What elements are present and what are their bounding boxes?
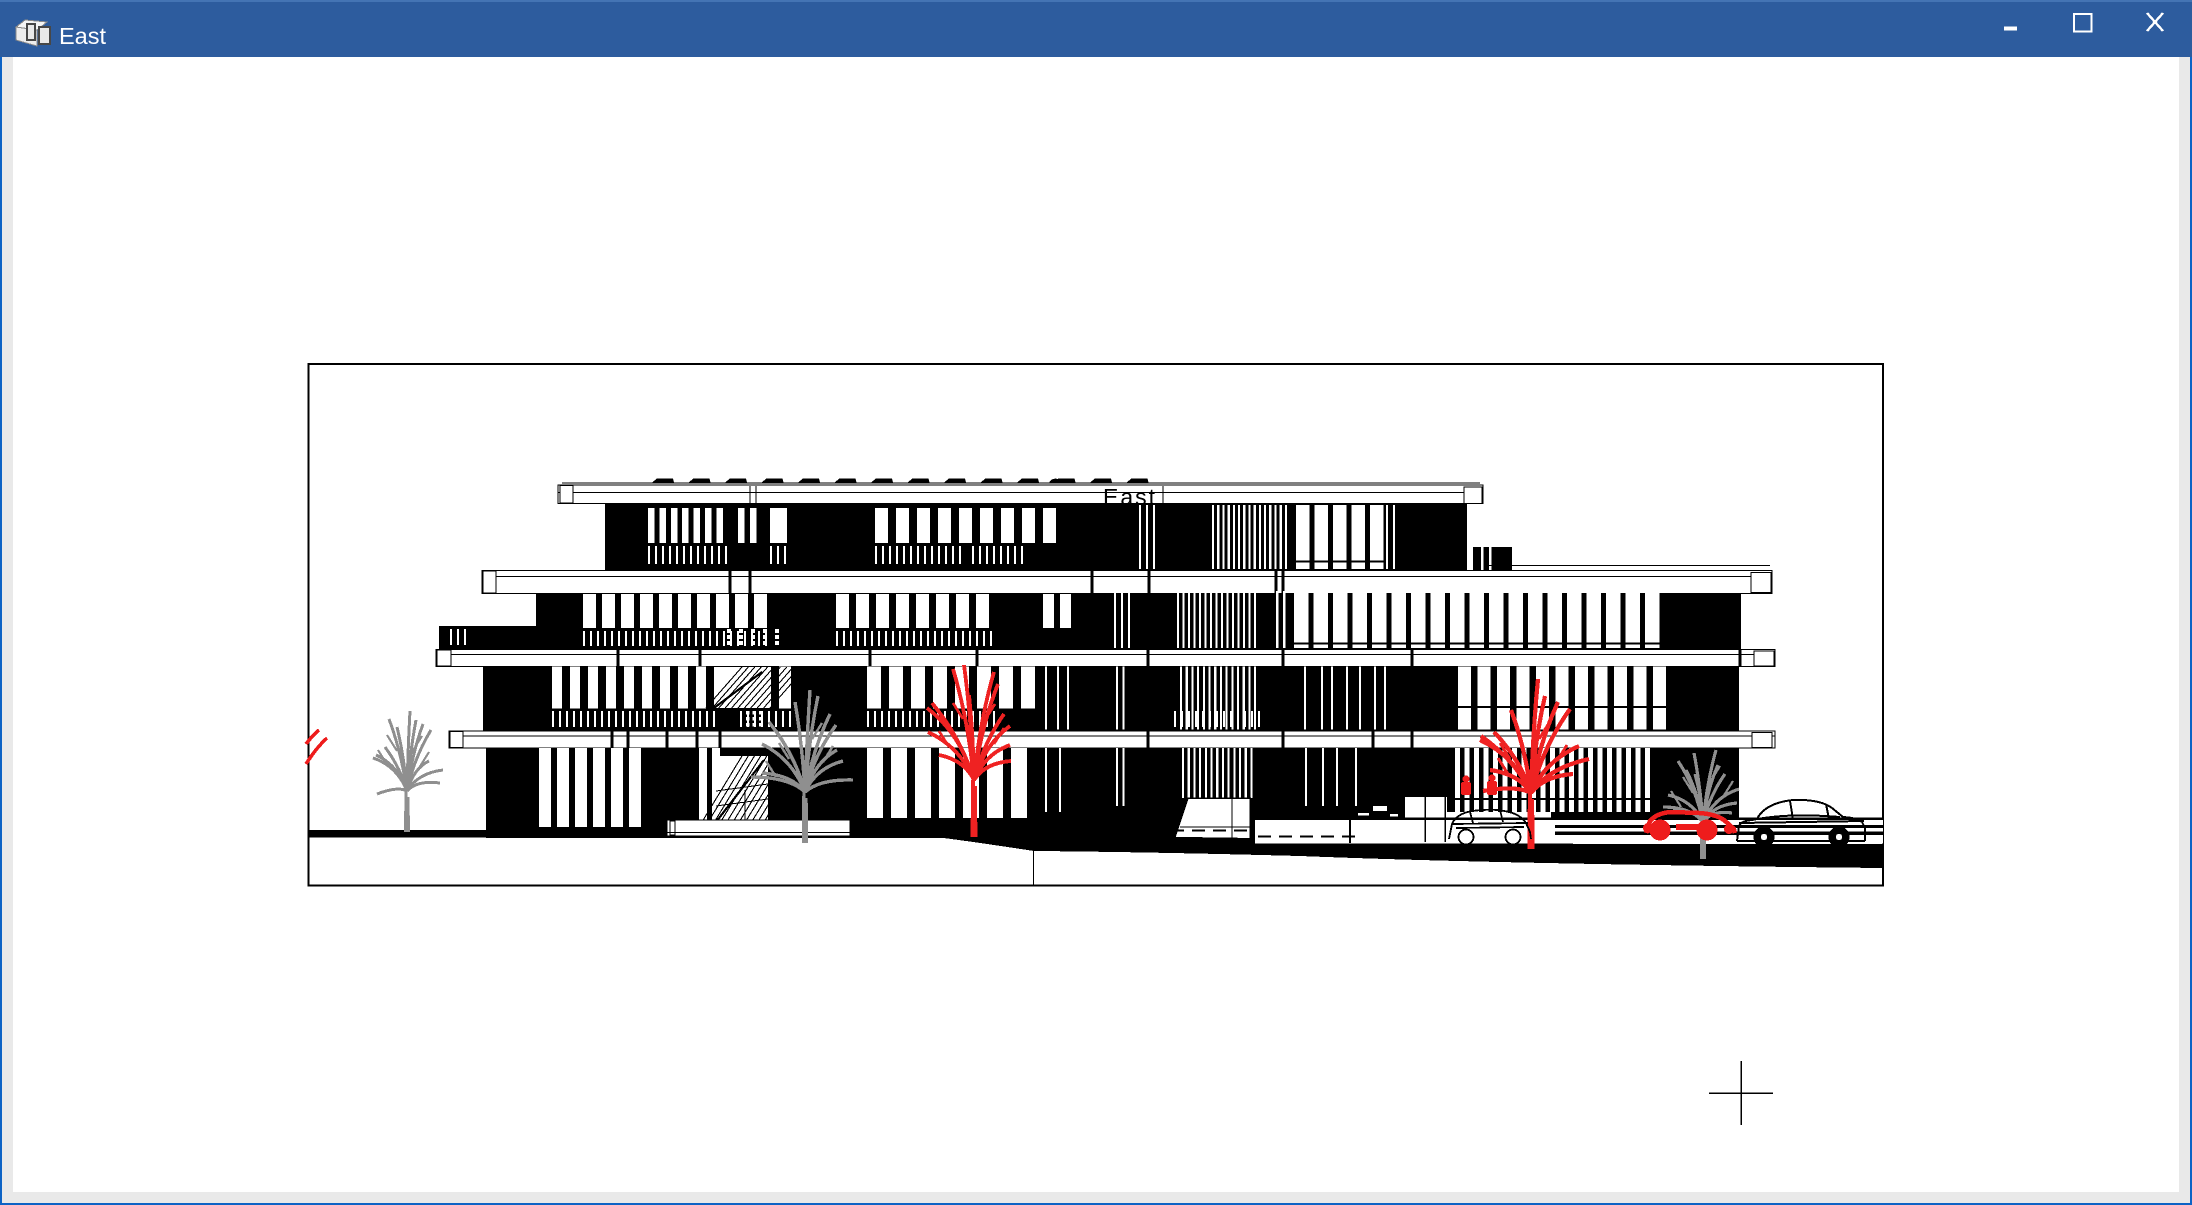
svg-text:East: East: [1103, 484, 1157, 510]
svg-text:East: East: [59, 23, 106, 49]
